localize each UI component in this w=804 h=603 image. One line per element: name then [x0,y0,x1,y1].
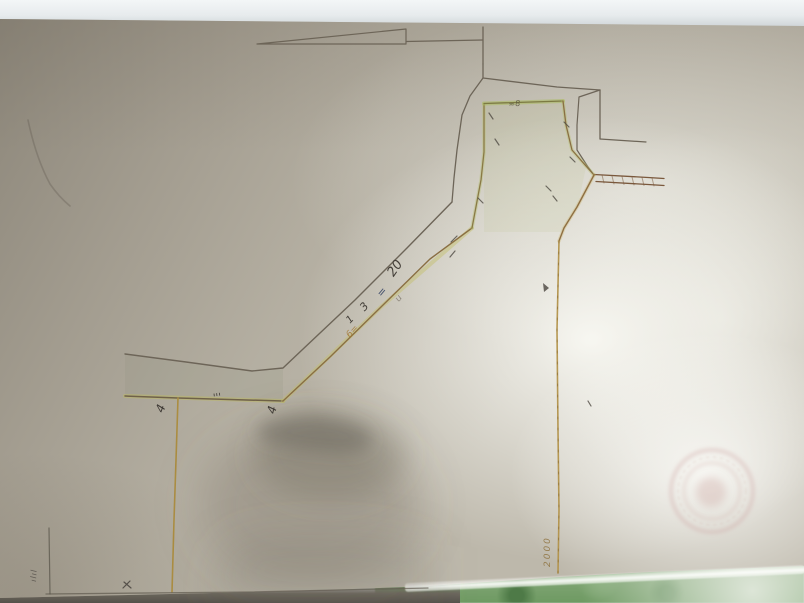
parcel-boundary-junction-south [559,175,594,241]
stamp-core [696,477,726,507]
parcel-boundary-west-underlay [125,396,283,401]
annotation-measure-3: 3 [358,300,371,313]
lot-line-east [600,139,646,142]
hand-shadow-mid [255,410,405,500]
road-hatching [602,175,654,186]
annotation-corner-4-west: 4 [154,403,168,414]
band-shade [125,355,283,401]
photo-of-survey-sketch: 20=31u6=44'''≈82000ılıl [0,0,804,603]
parcel-boundary-west-vertical [172,398,178,592]
outer-boundary-head-top [483,64,600,90]
handwritten-annotations-layer: 20=31u6=44'''≈82000ılıl [0,0,804,603]
survey-ticks [450,113,591,406]
parcel-head-wash [484,101,586,232]
hand-shadow-broad [200,425,420,585]
parcel-boundary-diagonal [283,228,472,401]
annotation-measure-1: 1 [345,314,357,326]
road-lower-line [596,182,664,186]
parcel-boundary-headeast-underlay [563,101,594,175]
paper-crease [28,120,70,206]
annotation-head-note: ≈8 [508,100,521,109]
parcel-boundary-south-vertical-specks [557,241,559,573]
annotation-measure-20: 20 [385,258,405,279]
parcel-boundary-headtop [484,101,563,104]
parcel-boundary-headwest-underlay [472,104,484,228]
hand-shadow-finger [258,415,372,453]
annotation-left-edge-note: ılıl [30,569,39,582]
dark-surface-under-sheet [0,582,460,603]
annotation-tick-marks: ''' [213,393,223,404]
scale-bar-line [406,40,483,42]
parcel-boundary-headtop-underlay [484,101,563,104]
x-mark [123,581,131,588]
parcel-boundary-south-vertical [557,241,559,573]
annotation-measure-equals: = [375,285,389,299]
road-upper-line [594,175,664,179]
parcel-boundary-diagonal-underlay [283,228,472,401]
parcel-boundary-headwest [472,104,484,228]
annotation-south-2000: 2000 [544,536,553,567]
annotation-corner-4-east: 4 [265,405,278,415]
outer-boundary-notch [577,90,600,175]
parcel-boundary-west [125,396,283,401]
survey-drawing-layer [0,0,804,603]
sheet-bottom-border [46,588,428,594]
stamp-middle-ring [678,457,746,525]
scale-bar-triangle [257,29,406,44]
outer-boundary-diagonal [125,202,452,371]
arrow-mark [543,283,549,292]
hand-shadow-bottom [210,534,430,603]
parcel-boundary-junction-south-underlay [559,175,594,241]
background-top-band [0,0,804,28]
sheet-left-edge-line [49,528,50,594]
outer-boundary-west-upper [452,78,483,202]
stamp-inner-ring [684,463,740,519]
annotation-measure-6: 6= [345,324,361,340]
paper-sheet [0,0,804,603]
green-surface-under-sheet [375,554,804,603]
paper-cut-edge-highlight [405,565,804,592]
parcel-boundary-headeast [563,101,594,175]
stamp-outer-ring [671,450,753,532]
annotation-measure-u: u [394,294,405,304]
